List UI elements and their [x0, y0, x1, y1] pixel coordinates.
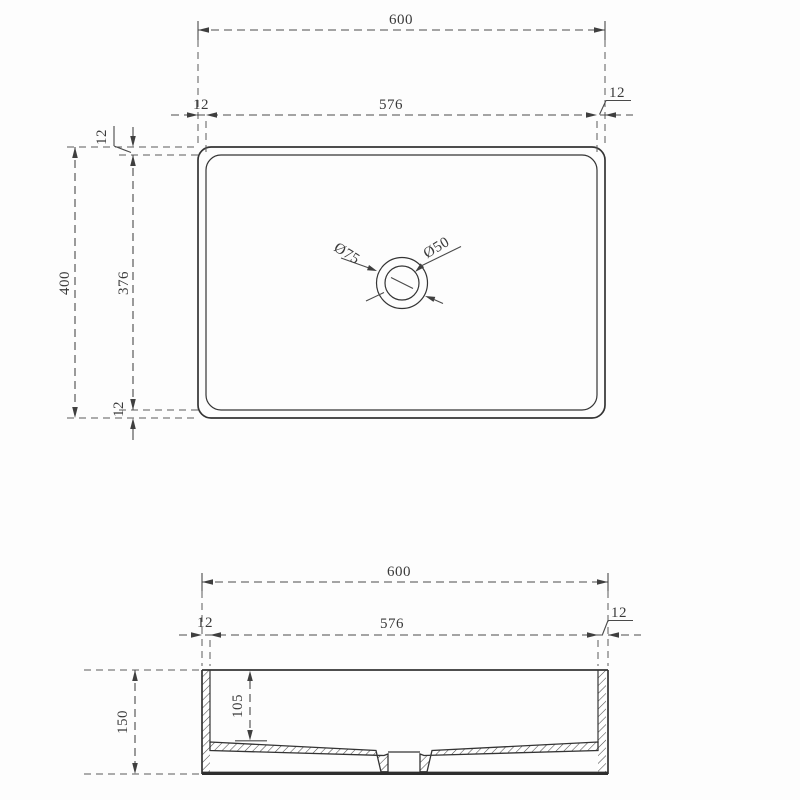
dim-top-height-inner: 376	[116, 155, 203, 410]
dim-label-section-wall-left: 12	[197, 615, 213, 631]
dim-label-top-wall-bottom: 12	[111, 401, 127, 417]
section-shell	[202, 670, 608, 774]
arrowhead	[367, 265, 377, 271]
drain-center-dash	[391, 278, 413, 289]
basin-floor-left	[210, 742, 388, 772]
dim-top-width-overall: 600	[198, 12, 605, 144]
dim-label-section-depth-inner: 105	[230, 694, 246, 718]
basin-floor-right	[420, 742, 598, 772]
dim-section-width-overall: 600	[202, 564, 608, 666]
dim-label-top-width-inner: 576	[379, 97, 403, 113]
dim-label-top-wall-top: 12	[94, 129, 110, 145]
dim-label-section-wall-right: 12	[611, 605, 627, 621]
drawing-canvas: Ø75 Ø50 600 576	[0, 0, 800, 800]
dim-section-wall-right-callout: 12	[603, 605, 634, 635]
dim-section-width-inner: 576 12 12	[179, 605, 641, 638]
dim-label-section-width-overall: 600	[387, 564, 411, 580]
dim-top-wall-right-callout: 12	[600, 85, 632, 115]
dim-top-wall-bottom: 12	[111, 401, 136, 440]
section-view: 600 576 12 12 150	[84, 564, 641, 774]
dim-label-section-height-overall: 150	[115, 710, 131, 734]
dim-section-height-overall: 150	[84, 670, 199, 774]
left-wall-hatch	[202, 670, 210, 773]
top-view: Ø75 Ø50 600 576	[57, 12, 633, 440]
dim-top-width-inner: 576 12 12	[171, 85, 633, 153]
right-wall-hatch	[598, 670, 606, 773]
dim-label-section-width-inner: 576	[380, 616, 404, 632]
technical-drawing-svg: Ø75 Ø50 600 576	[0, 0, 800, 800]
dim-label-top-wall-right: 12	[609, 85, 625, 101]
dim-label-top-wall-left: 12	[193, 97, 209, 113]
dim-section-depth-inner: 105	[230, 671, 267, 741]
dim-label-top-height-overall: 400	[57, 271, 73, 295]
dim-top-wall-top: 12	[94, 126, 136, 153]
arrowhead	[425, 296, 435, 302]
dim-label-top-width-overall: 600	[389, 12, 413, 28]
dim-drain-inner: Ø50	[366, 234, 461, 301]
dim-label-top-height-inner: 376	[116, 271, 132, 295]
